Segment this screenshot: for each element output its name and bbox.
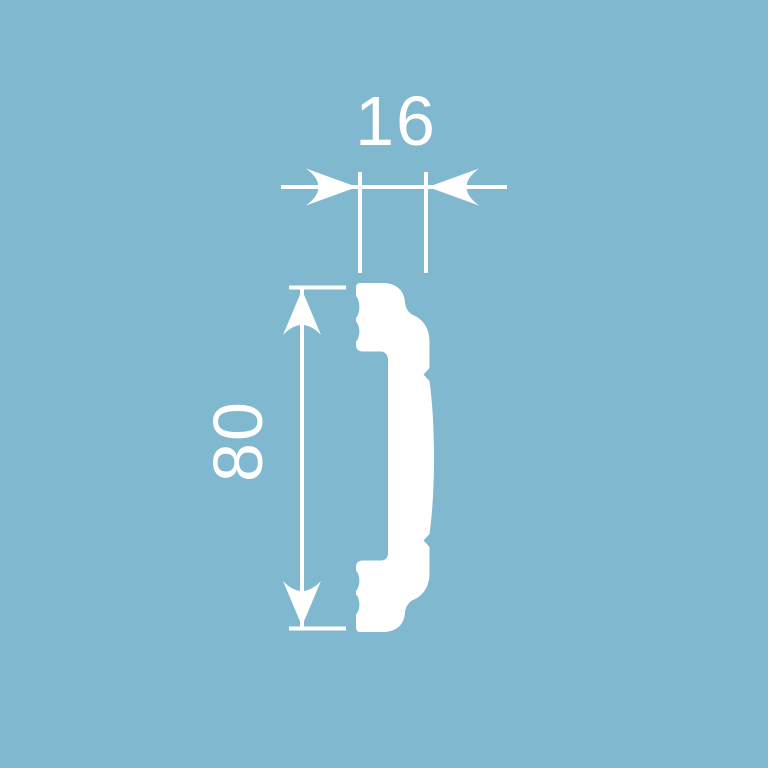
height-dimension-label: 80 [199,400,277,482]
width-dimension-label: 16 [355,82,437,160]
drawing-canvas: 16 80 [0,0,768,768]
technical-drawing: 16 80 [0,0,768,768]
